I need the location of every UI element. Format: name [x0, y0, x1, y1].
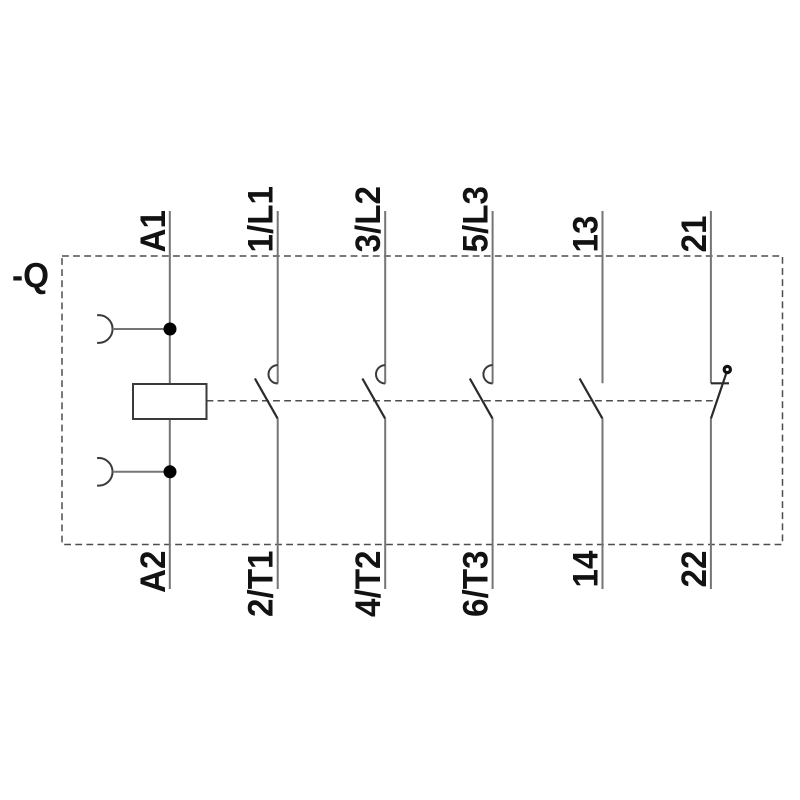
- svg-text:-Q: -Q: [12, 257, 49, 296]
- svg-text:22: 22: [675, 551, 714, 588]
- svg-text:1/L1: 1/L1: [242, 186, 281, 253]
- svg-text:4/T2: 4/T2: [349, 551, 388, 618]
- svg-text:2/T1: 2/T1: [242, 550, 281, 617]
- svg-text:6/T3: 6/T3: [457, 551, 496, 618]
- svg-text:A1: A1: [134, 210, 173, 253]
- svg-text:A2: A2: [134, 551, 173, 593]
- svg-text:14: 14: [567, 550, 606, 587]
- svg-text:5/L3: 5/L3: [457, 186, 496, 253]
- svg-text:13: 13: [567, 216, 606, 253]
- svg-text:21: 21: [675, 216, 714, 253]
- svg-text:3/L2: 3/L2: [349, 186, 388, 253]
